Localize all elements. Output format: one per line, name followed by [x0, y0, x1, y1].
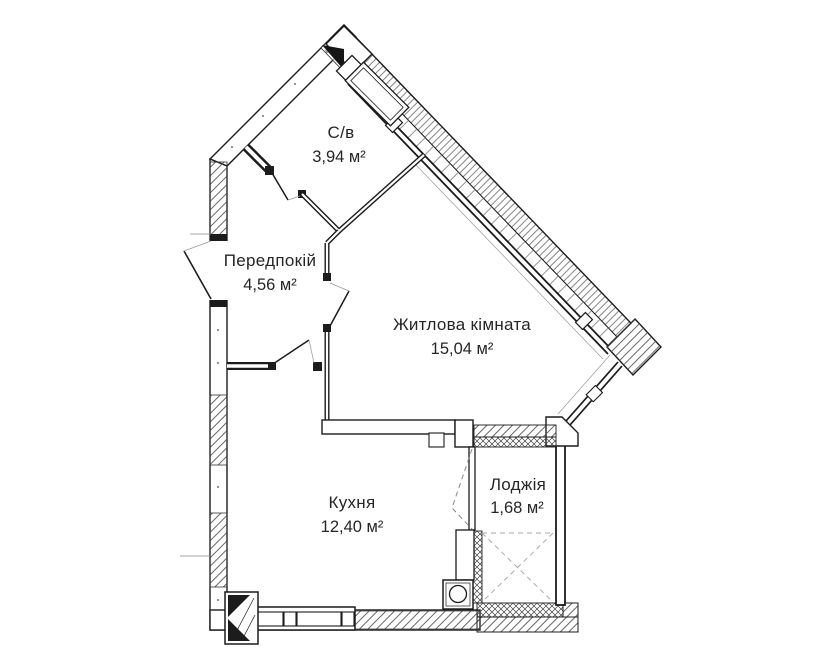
floor-plan-svg: С/в 3,94 м² Передпокій 4,56 м² Житлова к… — [0, 0, 821, 657]
living-room-door — [330, 283, 349, 326]
wall-pier — [456, 530, 474, 580]
room-name-hallway: Передпокій — [224, 251, 317, 270]
room-name-bathroom: С/в — [328, 123, 355, 142]
room-name-living: Житлова кімната — [393, 315, 531, 334]
loggia-outer-walls — [477, 444, 578, 632]
living-kitchen-wall — [322, 420, 473, 447]
room-area-loggia: 1,68 м² — [490, 499, 544, 517]
balcony-door — [452, 447, 475, 530]
room-area-hallway: 4,56 м² — [243, 276, 297, 294]
duct-symbol — [225, 592, 258, 644]
ventilation-shaft — [443, 580, 473, 609]
bathroom-door — [272, 173, 300, 200]
kitchen-door — [273, 340, 314, 364]
room-label-kitchen: Кухня 12,40 м² — [321, 493, 384, 536]
loggia-dashed-opening — [482, 533, 553, 602]
room-label-loggia: Лоджія 1,68 м² — [490, 475, 546, 517]
room-name-loggia: Лоджія — [490, 475, 546, 494]
room-name-kitchen: Кухня — [329, 493, 376, 512]
hallway-living-wall — [323, 243, 331, 421]
room-label-hallway: Передпокій 4,56 м² — [224, 251, 317, 294]
room-area-kitchen: 12,40 м² — [321, 518, 384, 536]
room-area-living: 15,04 м² — [431, 340, 494, 358]
room-area-bathroom: 3,94 м² — [312, 148, 366, 166]
loggia-diagonal-window — [546, 355, 622, 446]
room-label-living: Житлова кімната 15,04 м² — [393, 315, 531, 358]
floor-plan: С/в 3,94 м² Передпокій 4,56 м² Житлова к… — [0, 0, 821, 657]
entrance-door — [184, 241, 211, 299]
room-label-bathroom: С/в 3,94 м² — [312, 123, 366, 166]
